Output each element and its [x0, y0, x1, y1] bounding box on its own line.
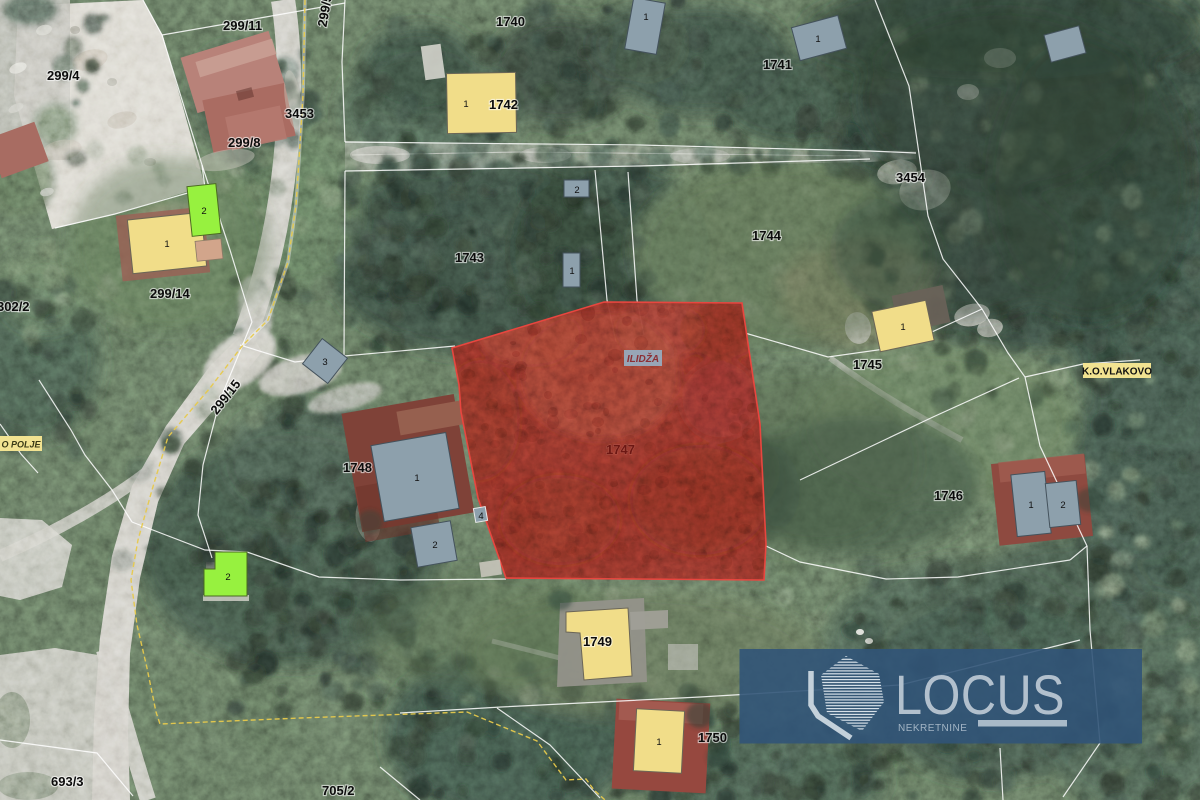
svg-text:3: 3 [322, 357, 327, 368]
svg-text:299/8: 299/8 [228, 135, 261, 150]
svg-text:1748: 1748 [343, 460, 372, 475]
svg-text:1746: 1746 [934, 488, 963, 503]
svg-text:NEKRETNINE: NEKRETNINE [898, 723, 967, 734]
svg-text:1: 1 [900, 322, 905, 333]
svg-text:2: 2 [1060, 500, 1065, 511]
svg-text:1743: 1743 [455, 250, 484, 265]
svg-text:299/11: 299/11 [223, 18, 262, 33]
svg-text:3453: 3453 [285, 106, 314, 121]
svg-text:1: 1 [463, 99, 468, 110]
svg-text:2: 2 [225, 572, 230, 583]
svg-text:K.O.VLAKOVO: K.O.VLAKOVO [1082, 367, 1152, 378]
svg-text:302/2: 302/2 [0, 299, 30, 314]
svg-text:1: 1 [656, 737, 661, 748]
svg-text:1: 1 [815, 34, 820, 45]
svg-text:299/14: 299/14 [150, 286, 191, 301]
svg-text:1744: 1744 [752, 228, 782, 243]
svg-text:1750: 1750 [698, 730, 727, 745]
svg-text:1740: 1740 [496, 14, 525, 29]
svg-text:1747: 1747 [606, 442, 635, 457]
svg-text:1: 1 [164, 239, 169, 250]
svg-text:2: 2 [432, 540, 437, 551]
svg-text:2: 2 [201, 206, 206, 217]
svg-text:299/4: 299/4 [47, 68, 80, 83]
svg-text:1742: 1742 [489, 97, 518, 112]
svg-text:LOCUS: LOCUS [895, 664, 1065, 727]
svg-text:2: 2 [574, 185, 579, 196]
svg-text:3454: 3454 [896, 170, 926, 185]
svg-text:1: 1 [1028, 500, 1033, 511]
svg-text:693/3: 693/3 [51, 774, 84, 789]
svg-text:1749: 1749 [583, 634, 612, 649]
svg-text:4: 4 [478, 511, 483, 522]
svg-text:ILIDŽA: ILIDŽA [627, 352, 659, 365]
svg-text:O POLJE: O POLJE [1, 440, 41, 450]
svg-text:1: 1 [643, 12, 648, 23]
svg-text:1: 1 [414, 473, 419, 484]
svg-text:705/2: 705/2 [322, 783, 355, 798]
svg-text:1741: 1741 [763, 57, 792, 72]
svg-text:1745: 1745 [853, 357, 882, 372]
svg-text:1: 1 [569, 266, 574, 277]
